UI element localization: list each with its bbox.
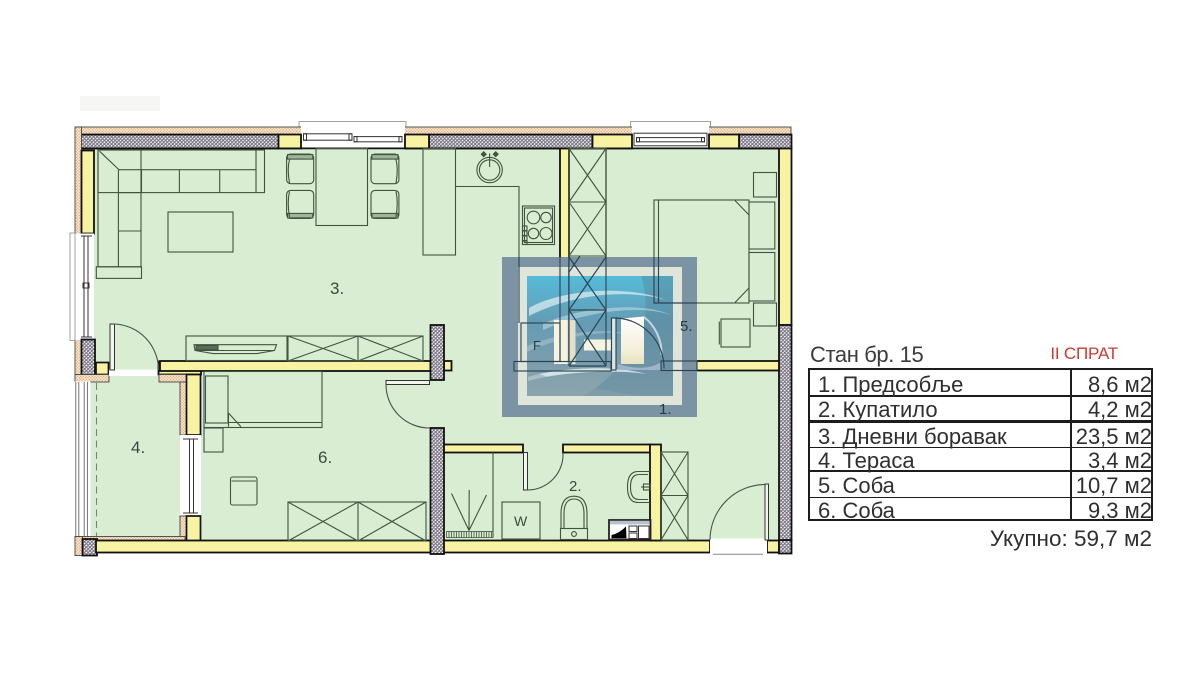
svg-text:4.: 4. [131, 438, 145, 457]
svg-text:W: W [514, 513, 528, 529]
svg-text:1.: 1. [659, 401, 672, 418]
svg-text:6.: 6. [318, 448, 332, 467]
svg-text:3.: 3. [330, 279, 344, 298]
svg-text:F: F [533, 338, 541, 353]
svg-text:5.: 5. [680, 318, 693, 335]
svg-text:2.: 2. [569, 478, 582, 495]
